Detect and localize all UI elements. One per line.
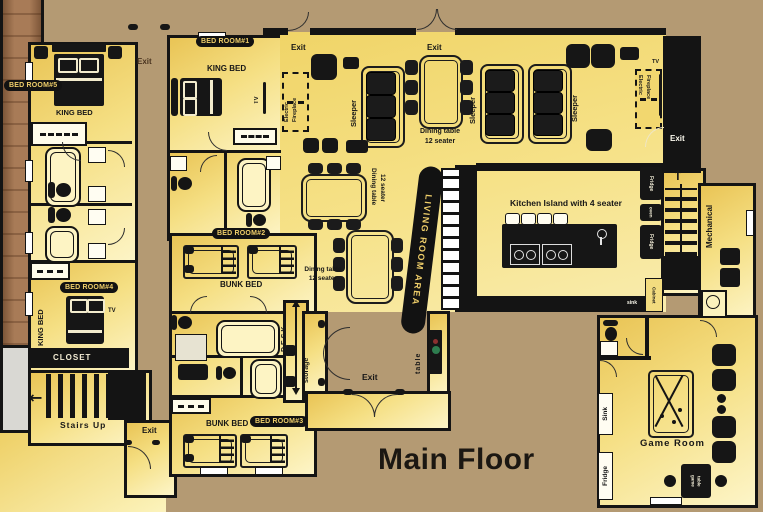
exit-corridor-right [663,36,701,173]
toilet-bowl [178,177,192,190]
dining-chair [405,80,418,95]
toilet-bowl [178,316,192,329]
sink [88,209,106,225]
burner [546,250,556,260]
game-table-label-2: table [697,476,702,487]
sofa-cushion [485,92,515,114]
sleeper-label-3: Sleeper [570,80,579,122]
side-table [322,138,338,153]
door-post [124,440,132,445]
cabinet-box: Cabinet [645,278,663,312]
door-arc [288,12,309,31]
storage-label: storage [303,325,310,383]
stairs-rail [680,184,682,258]
game-fridge-counter: Fridge [598,452,613,500]
fireplace-right-line1: Electric [637,75,643,119]
pillow [70,299,88,313]
game-table-seat [664,475,676,487]
armchair [311,54,337,80]
dining-top-label-1: Dining table [409,128,471,135]
bedroom1-tv-label: TV [254,90,260,104]
armchair [712,344,736,366]
dining-chair [327,219,342,230]
bedroom5-label: BED ROOM#5 [4,80,62,91]
bunk-ladder [279,246,294,274]
dining-chair [391,276,403,291]
sleeper-label-2: Sleeper [468,82,477,124]
bed-linen-line [210,80,213,114]
game-table: game table [681,464,711,498]
bedroom1-label: BED ROOM#1 [196,36,254,47]
sofa-cushion [366,118,396,141]
fireplace-right-line2: Fireplace [645,75,651,119]
armchair [586,129,612,151]
stairs-up-label: Stairs Up [60,420,106,430]
burner [558,250,568,260]
bunk-post [184,246,194,254]
dining-table-mid [301,174,367,222]
side-stool [717,405,726,414]
wall-top-a [263,28,288,35]
sink [88,243,106,259]
toilet [246,213,252,227]
bedroom4-bed-label: KING BED [36,296,45,346]
sofa-cushion [533,70,563,92]
wall-top-c [455,28,666,35]
pool-ball [678,408,682,412]
closet-bar-label: CLOSET [53,353,91,362]
toilet-bowl [223,367,236,379]
dining-table-top [419,55,463,129]
page-title: Main Floor [378,443,535,477]
bunk-ladder [219,435,234,463]
pillow [58,58,78,73]
bedroom1-bed-label: KING BED [207,64,246,73]
fridge-upper-label: Fridge [648,176,654,191]
washer-drum [706,295,720,309]
sofa-cushion [533,114,563,136]
dining-top-label-2: 12 seater [409,138,471,145]
dining-low-label-1: Dining table [301,266,345,273]
bunk-ladder [221,246,236,274]
exit-bottom-left-label: Exit [142,426,157,435]
desk-label: DESK [281,312,288,352]
cabinet-label: Cabinet [652,287,657,304]
entry-exit-label: Exit [362,372,378,382]
door-post [152,440,160,445]
bunk-post [248,246,258,254]
fridge-lower-label: Fridge [648,234,654,249]
game-fridge-label: Fridge [602,466,609,486]
door-arc [437,9,457,30]
tv-wall-mount [263,82,266,114]
toilet [171,176,177,191]
bedroom5-bed-label: KING BED [56,108,93,117]
dining-chair [405,100,418,115]
pillow [87,299,105,313]
corridor-exit-label: Exit [137,57,152,66]
utility-box [720,268,740,287]
bed-linen-line [56,78,102,81]
bedroom4-tv-label: TV [108,308,116,314]
game-table-label-1: game [691,475,696,487]
toilet-bowl [56,208,71,222]
fridge-lower: Fridge [640,225,662,259]
pillow [183,81,197,99]
bunk-post [184,454,194,462]
plant-flower [433,339,438,344]
wall-bathb2-v [240,355,243,397]
stove [542,244,572,265]
nightstand [34,46,48,59]
wall-kitchen-top [476,163,664,171]
pool-ball [660,414,664,418]
shower [175,334,207,361]
game-bath-wall-v [645,315,649,360]
bedroom3-bed-label: BUNK BED [206,419,248,428]
game-sink-counter: Sink [598,393,613,435]
window [25,232,33,254]
stairs-dark-landing [108,372,146,420]
window [200,467,228,475]
plant [432,346,440,354]
bench [346,140,368,153]
stairs-steps [46,374,110,418]
dining-chair [327,163,342,174]
toilet [216,366,222,380]
pillow [183,98,197,116]
toilet [48,207,55,223]
sofa-cushion [485,70,515,92]
utility-box [720,248,740,265]
kitchen-island-label: Kitchen Island with 4 seater [496,198,636,208]
toilet [171,315,177,330]
window [746,210,754,236]
door-post [318,378,325,386]
door-post [128,24,138,30]
closet-dashed [233,128,277,145]
side-table [303,138,319,153]
game-bath-wall-h [597,356,651,360]
burner [526,250,536,260]
sink [88,147,106,163]
door-post [318,320,325,328]
bathtub [45,226,79,263]
dining-chair [308,219,323,230]
dining-chair [391,238,403,253]
toilet-bowl [253,214,266,226]
bunk-post [184,435,194,443]
fireplace-left-line2: Fireplace [292,78,298,122]
living-exit-left-label: Exit [291,43,306,52]
island-faucet-stem [600,237,602,245]
king-bed-headboard [171,78,178,116]
pillow [79,58,99,73]
side-stool [717,394,726,403]
sofa-cushion [485,114,515,136]
toilet-bowl [605,327,617,341]
living-exit-top-label: Exit [427,43,442,52]
dining-chair [333,238,345,253]
sink [600,341,618,356]
mechanical-label: Mechanical [705,190,714,248]
sofa-cushion [533,92,563,114]
living-tv-right-label: TV [652,59,659,65]
toilet-bowl [56,183,71,197]
bunk-post [184,265,194,273]
desk-guide-line [295,306,297,390]
ottoman [620,47,639,60]
wall-divider-baths [28,203,132,206]
door-post [160,24,170,30]
pool-ball [672,420,676,424]
stove [510,244,540,265]
king-bed-headboard [52,44,106,52]
stairs-arrow-left: ← [29,388,42,407]
wall-bath-mid-v [224,150,227,235]
closet-dashed [30,262,70,280]
bedroom2-label: BED ROOM#2 [212,228,270,239]
dining-low-label-2: 12 seater [301,275,345,282]
sleeper-label-1: Sleeper [349,85,358,127]
dining-mid-label-1: Dining table [370,168,377,220]
dining-table-low [346,230,394,304]
sink [88,186,106,202]
oven: oven [640,204,662,221]
wall-kitchen-bottom [455,296,652,312]
window-wall [441,168,461,310]
island-faucet [597,229,607,239]
armchair [712,416,736,438]
entry-table-label: table [415,336,422,374]
bathtub [250,359,282,399]
dining-chair [346,219,361,230]
bedroom4-label: BED ROOM#4 [60,282,118,293]
dining-chair [346,163,361,174]
window [25,160,33,182]
bed-linen-line [68,330,102,333]
wall-top-b [310,28,416,35]
window [650,497,682,505]
armchair [712,441,736,463]
dining-chair [308,163,323,174]
armchair [566,44,590,68]
door-arc [417,9,437,30]
dining-chair [391,257,403,272]
sofa-cushion [366,95,396,118]
stairs-right-landing [661,256,700,290]
closet-dashed [171,398,211,414]
bedroom3-label: BED ROOM#3 [250,416,308,427]
kitchen-sink-label: sink [627,300,637,306]
game-sink-label: Sink [602,407,609,421]
armchair [591,44,615,68]
floor-plan: BED ROOM#5 KING BED BED ROOM#4 KING BED … [0,0,763,512]
oven-label: oven [649,207,654,218]
bedroom2-bed-label: BUNK BED [220,280,262,289]
toilet [48,182,55,198]
armchair [712,369,736,391]
bathtub-large [216,320,280,358]
sink [170,156,187,171]
window [255,467,283,475]
game-table-seat [715,475,727,487]
burner [514,250,524,260]
bunk-post [241,435,251,443]
window [25,292,33,316]
sofa-cushion [366,72,396,95]
sink [266,156,281,170]
game-room-label: Game Room [640,438,705,449]
dresser [178,364,208,380]
exit-right-label: Exit [670,134,685,143]
tv-wall-mount [659,74,662,116]
dining-mid-label-2: 12 seater [379,174,386,226]
toilet [603,320,618,326]
stairs-arrow-up: ↑ [672,168,684,184]
bunk-ladder [270,435,285,463]
dining-chair [460,60,473,75]
nightstand [108,46,122,59]
fireplace-left-line1: Electric [284,78,290,122]
dining-chair [405,60,418,75]
fridge-upper: Fridge [640,167,662,200]
ottoman [343,57,359,69]
